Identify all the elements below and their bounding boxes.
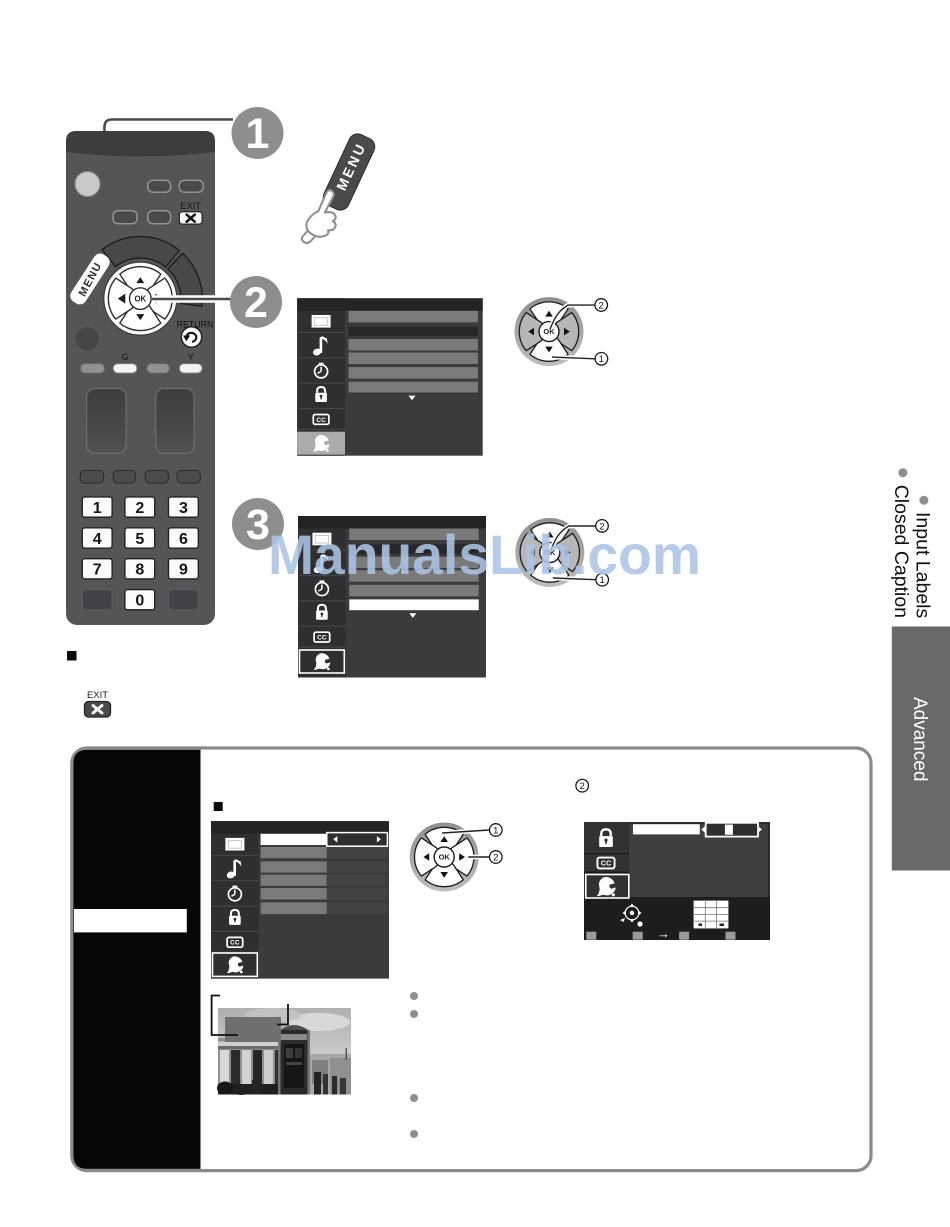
svg-text:1: 1 [599,354,604,365]
svg-text:EXIT: EXIT [87,690,108,701]
svg-text:9: 9 [179,562,188,579]
svg-text:6: 6 [179,531,188,548]
svg-text:3: 3 [246,501,270,549]
svg-text:Advanced: Advanced [909,697,930,782]
svg-text:OK: OK [439,853,451,862]
svg-text:0: 0 [135,593,144,610]
svg-text:8: 8 [135,562,144,579]
svg-text:4: 4 [93,531,102,548]
svg-text:5: 5 [135,531,144,548]
svg-text:7: 7 [93,562,102,579]
svg-text:ManualsLib.com: ManualsLib.com [268,524,701,586]
svg-text:1: 1 [246,110,270,158]
svg-text:1: 1 [93,500,102,517]
svg-text:OK: OK [134,294,146,303]
svg-text:2: 2 [244,279,268,327]
svg-text:→: → [657,926,670,941]
svg-text:Y: Y [188,352,194,362]
svg-text:3: 3 [179,500,188,517]
svg-text:EXIT: EXIT [180,201,201,212]
svg-text:Input Labels: Input Labels [912,512,934,619]
svg-text:G: G [121,352,128,362]
svg-text:2: 2 [580,781,585,792]
svg-text:2: 2 [135,500,144,517]
svg-text:2: 2 [493,852,498,863]
svg-text:Closed Caption: Closed Caption [890,485,912,618]
svg-text:1: 1 [493,825,498,836]
svg-text:2: 2 [599,300,604,311]
